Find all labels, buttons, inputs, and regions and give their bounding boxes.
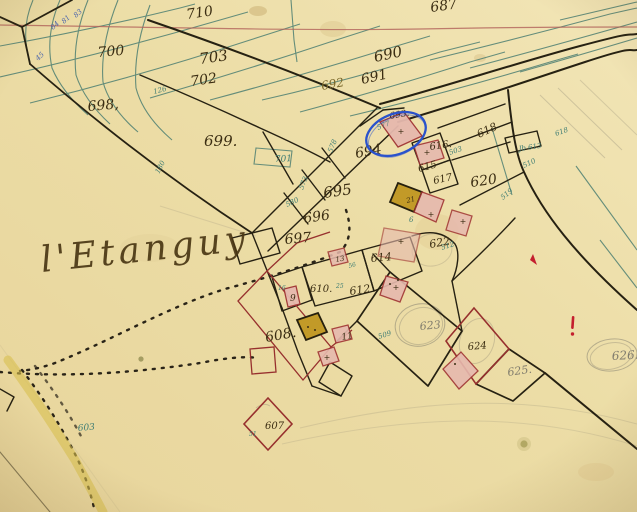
cadastral-map-scan: l'Etanguy 710700703702698,699.6876906916…	[0, 0, 637, 512]
vignette-overlay	[0, 0, 637, 512]
map-canvas: l'Etanguy 710700703702698,699.6876906916…	[0, 0, 637, 512]
